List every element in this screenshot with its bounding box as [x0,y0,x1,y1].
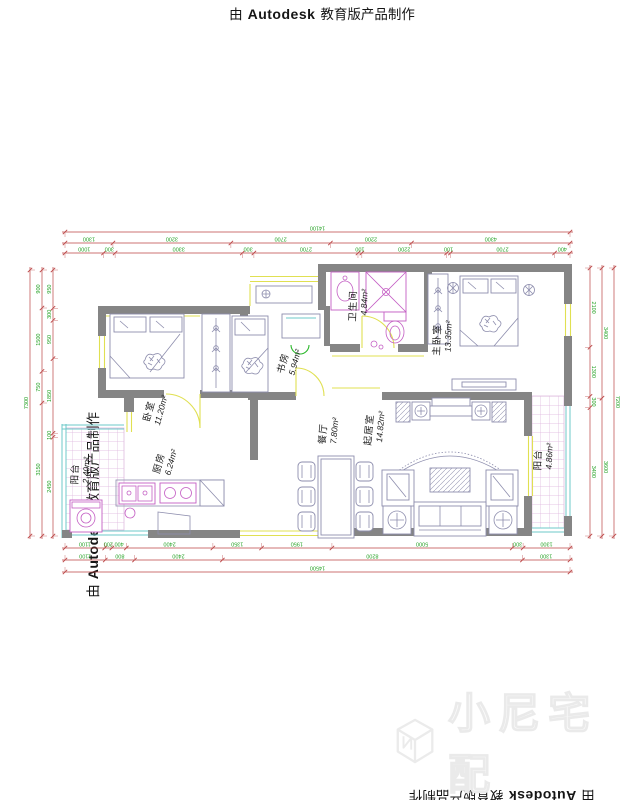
svg-text:14500: 14500 [310,565,325,571]
svg-text:2100: 2100 [590,302,596,314]
living-room-furniture [382,398,518,536]
svg-text:5000: 5000 [416,541,428,547]
svg-text:2700: 2700 [496,246,508,252]
label-dining: 餐厅 7.80m² [316,415,340,446]
svg-text:6.24m²: 6.24m² [163,447,180,476]
svg-text:1000: 1000 [78,246,90,252]
brand-watermark: 小尼宅配 [392,680,640,800]
svg-text:14100: 14100 [310,225,325,231]
svg-text:2700: 2700 [275,236,287,242]
svg-text:阳台: 阳台 [69,463,82,484]
svg-text:1300: 1300 [83,236,95,242]
svg-text:13.35m²: 13.35m² [443,319,454,352]
svg-text:4.84m²: 4.84m² [359,288,370,316]
label-master-bedroom: 主卧室 13.35m² [430,319,453,356]
coffee-table [430,468,470,492]
label-bathroom: 卫生间 4.84m² [346,287,369,322]
svg-text:2400: 2400 [172,553,184,559]
svg-text:2200: 2200 [398,246,410,252]
study-furniture [232,314,320,392]
svg-text:阳台: 阳台 [532,449,545,470]
svg-text:2200: 2200 [365,236,377,242]
brand-watermark-text: 小尼宅配 [448,680,640,800]
svg-text:3300: 3300 [173,246,185,252]
svg-text:3200: 3200 [166,236,178,242]
svg-text:1350: 1350 [231,541,243,547]
dining-furniture [298,456,373,538]
cube-logo-icon [392,716,438,766]
label-living: 起居室 14.82m² [362,409,387,447]
svg-text:2.40m²: 2.40m² [81,456,92,485]
svg-text:100: 100 [355,246,364,252]
svg-text:950: 950 [47,285,53,294]
svg-text:2400: 2400 [163,541,175,547]
svg-text:1300: 1300 [540,553,552,559]
label-kitchen: 厨房 6.24m² [151,444,180,478]
svg-text:14.82m²: 14.82m² [374,410,387,443]
svg-text:300: 300 [105,246,114,252]
nightstand-plant [448,282,459,294]
kitchen-fixtures [116,480,224,534]
entry-cabinet [256,286,312,303]
svg-text:8200: 8200 [366,553,378,559]
bedroom-furniture [110,314,230,392]
washing-machine [70,500,102,532]
svg-text:5.94m²: 5.94m² [287,347,304,376]
svg-text:4300: 4300 [485,236,497,242]
svg-text:750: 750 [36,383,42,392]
svg-text:1100: 1100 [79,541,91,547]
svg-text:100: 100 [47,431,53,440]
svg-text:100: 100 [444,246,453,252]
svg-text:1500: 1500 [36,334,42,346]
label-study: 书房 5.94m² [275,344,304,378]
svg-text:3400: 3400 [590,466,596,478]
svg-text:400: 400 [115,541,124,547]
svg-text:400: 400 [558,246,567,252]
nightstand-plant [524,284,535,296]
svg-text:1850: 1850 [47,390,53,402]
svg-text:300: 300 [513,541,522,547]
svg-text:1300: 1300 [590,366,596,378]
svg-text:1950: 1950 [291,541,303,547]
svg-text:3600: 3600 [602,461,608,473]
svg-text:800: 800 [115,553,124,559]
svg-text:200: 200 [104,541,113,547]
svg-text:300: 300 [590,397,596,406]
svg-text:950: 950 [47,335,53,344]
svg-text:卫生间: 卫生间 [346,290,359,322]
svg-text:3400: 3400 [602,327,608,339]
svg-text:300: 300 [244,246,253,252]
svg-text:7200: 7200 [614,396,620,408]
svg-text:900: 900 [36,284,42,293]
cad-floorplan-page: 由Autodesk教育版产品制作 由Autodesk教育版产品制作 由Autod… [0,0,640,800]
svg-text:1100: 1100 [79,553,91,559]
svg-text:4.86m²: 4.86m² [544,442,555,470]
svg-text:2700: 2700 [300,246,312,252]
svg-text:2450: 2450 [47,481,53,493]
svg-text:主卧室: 主卧室 [430,324,443,356]
svg-text:7300: 7300 [24,397,30,409]
svg-text:1300: 1300 [540,541,552,547]
svg-text:300: 300 [47,310,53,319]
svg-text:3150: 3150 [36,463,42,475]
svg-text:7.80m²: 7.80m² [328,416,340,444]
